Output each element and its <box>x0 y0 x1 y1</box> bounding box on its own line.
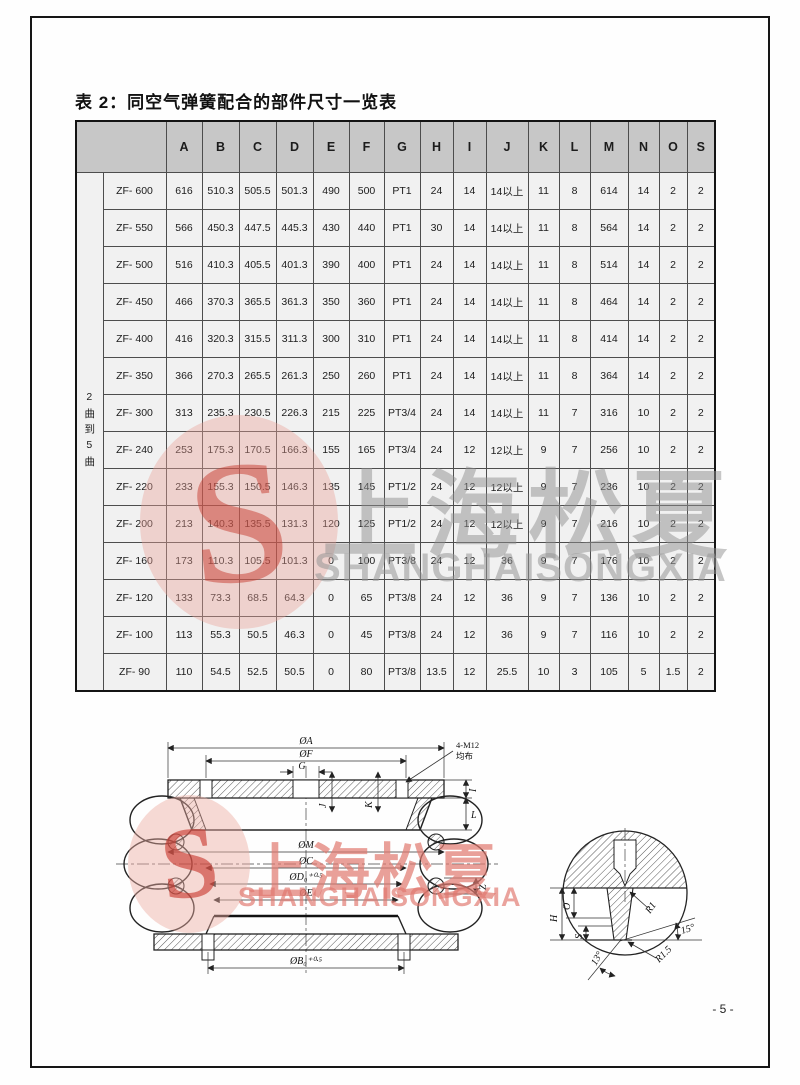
dimension-table-wrap: ABCDEFGHIJKLMNOS 2曲到5曲ZF- 600616510.3505… <box>75 120 716 692</box>
table-cell: 11 <box>528 321 559 358</box>
table-cell: 14以上 <box>486 321 528 358</box>
table-cell: 8 <box>559 210 590 247</box>
dim-label-of: ØF <box>298 749 313 760</box>
table-cell: 36 <box>486 543 528 580</box>
table-cell: 215 <box>313 395 349 432</box>
table-cell: 155.3 <box>202 469 239 506</box>
model-name-cell: ZF- 200 <box>103 506 166 543</box>
table-cell: 113 <box>166 617 202 654</box>
table-row: ZF- 10011355.350.546.3045PT3/82412369711… <box>76 617 715 654</box>
table-cell: 11 <box>528 210 559 247</box>
table-cell: 2 <box>659 580 687 617</box>
table-cell: 10 <box>628 543 659 580</box>
table-cell: 9 <box>528 617 559 654</box>
table-cell: 12 <box>453 580 486 617</box>
table-cell: 410.3 <box>202 247 239 284</box>
table-cell: 445.3 <box>276 210 313 247</box>
table-cell: PT3/8 <box>384 580 420 617</box>
table-cell: 14 <box>453 358 486 395</box>
table-cell: 2 <box>687 358 715 395</box>
row-group-label: 2曲到5曲 <box>76 173 103 692</box>
model-name-cell: ZF- 500 <box>103 247 166 284</box>
dim-label-oc: ØC <box>298 856 313 867</box>
model-name-cell: ZF- 550 <box>103 210 166 247</box>
table-cell: 11 <box>528 284 559 321</box>
table-cell: 514 <box>590 247 628 284</box>
table-cell: 2 <box>687 580 715 617</box>
table-cell: 14以上 <box>486 173 528 210</box>
table-cell: 131.3 <box>276 506 313 543</box>
table-cell: 260 <box>349 358 384 395</box>
table-row: ZF- 160173110.3105.5101.30100PT3/8241236… <box>76 543 715 580</box>
table-cell: 170.5 <box>239 432 276 469</box>
table-cell: 311.3 <box>276 321 313 358</box>
table-cell: 14 <box>453 395 486 432</box>
page-number: - 5 - <box>688 1002 758 1016</box>
table-cell: 450.3 <box>202 210 239 247</box>
table-cell: 261.3 <box>276 358 313 395</box>
table-cell: 10 <box>628 395 659 432</box>
technical-drawing: ØA ØF G 4-M12 均布 J K I L <box>110 728 710 984</box>
column-header: G <box>384 121 420 173</box>
column-header: J <box>486 121 528 173</box>
table-cell: 313 <box>166 395 202 432</box>
table-cell: 24 <box>420 284 453 321</box>
table-cell: 2 <box>687 506 715 543</box>
table-cell: 65 <box>349 580 384 617</box>
table-cell: 12 <box>453 469 486 506</box>
detail-view: H O S R1 R1.5 15° 13° <box>549 828 702 980</box>
table-cell: 36 <box>486 617 528 654</box>
table-row: ZF- 12013373.368.564.3065PT3/82412369713… <box>76 580 715 617</box>
table-cell: 12以上 <box>486 432 528 469</box>
dim-label-z: Z <box>478 884 489 890</box>
table-cell: 2 <box>687 321 715 358</box>
column-header: B <box>202 121 239 173</box>
table-corner-cell <box>76 121 166 173</box>
table-cell: 13.5 <box>420 654 453 692</box>
table-cell: 146.3 <box>276 469 313 506</box>
table-cell: 24 <box>420 432 453 469</box>
table-cell: 236 <box>590 469 628 506</box>
table-cell: 14 <box>628 321 659 358</box>
table-cell: 233 <box>166 469 202 506</box>
table-cell: 253 <box>166 432 202 469</box>
table-cell: 320.3 <box>202 321 239 358</box>
table-cell: PT1 <box>384 247 420 284</box>
table-cell: 2 <box>687 469 715 506</box>
table-cell: 24 <box>420 580 453 617</box>
table-cell: 2 <box>659 321 687 358</box>
table-cell: 10 <box>628 506 659 543</box>
table-cell: 416 <box>166 321 202 358</box>
table-cell: 11 <box>528 358 559 395</box>
table-cell: 7 <box>559 580 590 617</box>
dim-label-om: ØM <box>297 840 314 851</box>
table-cell: 366 <box>166 358 202 395</box>
table-cell: 564 <box>590 210 628 247</box>
table-cell: 24 <box>420 358 453 395</box>
column-header: S <box>687 121 715 173</box>
table-cell: 24 <box>420 247 453 284</box>
table-cell: 2 <box>687 395 715 432</box>
table-cell: PT3/4 <box>384 432 420 469</box>
table-cell: 2 <box>659 617 687 654</box>
dim-label-g: G <box>298 761 305 772</box>
table-cell: PT1 <box>384 210 420 247</box>
model-name-cell: ZF- 120 <box>103 580 166 617</box>
model-name-cell: ZF- 240 <box>103 432 166 469</box>
column-header: H <box>420 121 453 173</box>
dim-label-oa: ØA <box>298 736 313 747</box>
table-cell: 12 <box>453 617 486 654</box>
table-cell: 505.5 <box>239 173 276 210</box>
table-cell: 68.5 <box>239 580 276 617</box>
table-cell: 310 <box>349 321 384 358</box>
table-cell: 14 <box>628 247 659 284</box>
table-cell: 80 <box>349 654 384 692</box>
table-cell: 8 <box>559 358 590 395</box>
dim-label-o: O <box>562 903 573 910</box>
table-cell: 8 <box>559 321 590 358</box>
table-cell: 101.3 <box>276 543 313 580</box>
table-cell: 10 <box>628 580 659 617</box>
table-cell: 216 <box>590 506 628 543</box>
table-cell: 256 <box>590 432 628 469</box>
table-cell: 2 <box>659 358 687 395</box>
model-name-cell: ZF- 220 <box>103 469 166 506</box>
table-cell: 12 <box>453 543 486 580</box>
table-cell: 9 <box>528 506 559 543</box>
table-cell: 7 <box>559 506 590 543</box>
table-cell: 14 <box>453 173 486 210</box>
bolt-spec-label: 4-M12 <box>456 740 479 750</box>
table-cell: 120 <box>313 506 349 543</box>
table-cell: 370.3 <box>202 284 239 321</box>
table-cell: 2 <box>659 432 687 469</box>
table-cell: PT1/2 <box>384 506 420 543</box>
table-cell: 7 <box>559 395 590 432</box>
table-cell: 24 <box>420 173 453 210</box>
table-cell: 45 <box>349 617 384 654</box>
table-cell: 401.3 <box>276 247 313 284</box>
table-cell: 110.3 <box>202 543 239 580</box>
table-cell: 2 <box>659 210 687 247</box>
table-cell: 24 <box>420 617 453 654</box>
table-row: ZF- 200213140.3135.5131.3120125PT1/22412… <box>76 506 715 543</box>
table-row: ZF- 9011054.552.550.5080PT3/813.51225.51… <box>76 654 715 692</box>
table-cell: 50.5 <box>239 617 276 654</box>
model-name-cell: ZF- 400 <box>103 321 166 358</box>
model-name-cell: ZF- 350 <box>103 358 166 395</box>
table-cell: 14 <box>453 321 486 358</box>
table-cell: 9 <box>528 469 559 506</box>
table-cell: 510.3 <box>202 173 239 210</box>
table-cell: 9 <box>528 432 559 469</box>
table-cell: 2 <box>659 173 687 210</box>
table-cell: 64.3 <box>276 580 313 617</box>
table-cell: 30 <box>420 210 453 247</box>
table-cell: 0 <box>313 543 349 580</box>
table-cell: 14 <box>453 247 486 284</box>
table-cell: 10 <box>628 469 659 506</box>
table-cell: 50.5 <box>276 654 313 692</box>
column-header: F <box>349 121 384 173</box>
model-name-cell: ZF- 100 <box>103 617 166 654</box>
model-name-cell: ZF- 300 <box>103 395 166 432</box>
table-cell: 100 <box>349 543 384 580</box>
table-cell: PT1/2 <box>384 469 420 506</box>
table-cell: 0 <box>313 617 349 654</box>
table-cell: 501.3 <box>276 173 313 210</box>
column-header: A <box>166 121 202 173</box>
table-cell: 316 <box>590 395 628 432</box>
table-cell: 2 <box>687 432 715 469</box>
table-cell: 11 <box>528 247 559 284</box>
dimension-table: ABCDEFGHIJKLMNOS 2曲到5曲ZF- 600616510.3505… <box>75 120 716 692</box>
table-cell: 25.5 <box>486 654 528 692</box>
table-row: ZF- 450466370.3365.5361.3350360PT1241414… <box>76 284 715 321</box>
dim-label-i: I <box>468 788 479 793</box>
model-name-cell: ZF- 160 <box>103 543 166 580</box>
table-cell: 14以上 <box>486 358 528 395</box>
table-cell: 265.5 <box>239 358 276 395</box>
table-cell: 166.3 <box>276 432 313 469</box>
table-cell: 140.3 <box>202 506 239 543</box>
table-cell: 2 <box>659 395 687 432</box>
dim-label-oe: ØE <box>298 888 312 899</box>
page-title: 表 2：同空气弹簧配合的部件尺寸一览表 <box>75 88 397 113</box>
table-cell: 2 <box>687 284 715 321</box>
table-cell: 614 <box>590 173 628 210</box>
table-cell: 14 <box>453 284 486 321</box>
dim-label-angle-a: 13° <box>589 950 606 968</box>
table-row: ZF- 500516410.3405.5401.3390400PT1241414… <box>76 247 715 284</box>
table-cell: 133 <box>166 580 202 617</box>
table-cell: 105.5 <box>239 543 276 580</box>
table-cell: 176 <box>590 543 628 580</box>
table-row: ZF- 220233155.3150.5146.3135145PT1/22412… <box>76 469 715 506</box>
table-cell: 516 <box>166 247 202 284</box>
table-cell: 440 <box>349 210 384 247</box>
table-row: ZF- 300313235.3230.5226.3215225PT3/42414… <box>76 395 715 432</box>
table-cell: 447.5 <box>239 210 276 247</box>
table-cell: 9 <box>528 543 559 580</box>
table-cell: 14以上 <box>486 210 528 247</box>
table-cell: 105 <box>590 654 628 692</box>
table-cell: 400 <box>349 247 384 284</box>
column-header: N <box>628 121 659 173</box>
table-cell: 116 <box>590 617 628 654</box>
table-cell: 12以上 <box>486 469 528 506</box>
table-cell: 135.5 <box>239 506 276 543</box>
crimp-ring <box>428 834 444 850</box>
table-cell: 2 <box>687 654 715 692</box>
column-header: O <box>659 121 687 173</box>
table-cell: 135 <box>313 469 349 506</box>
column-header: E <box>313 121 349 173</box>
table-cell: PT3/8 <box>384 654 420 692</box>
table-cell: 315.5 <box>239 321 276 358</box>
column-header: C <box>239 121 276 173</box>
table-cell: 36 <box>486 580 528 617</box>
table-cell: 14以上 <box>486 284 528 321</box>
table-cell: 270.3 <box>202 358 239 395</box>
table-cell: 0 <box>313 580 349 617</box>
column-header: I <box>453 121 486 173</box>
table-cell: 8 <box>559 284 590 321</box>
table-cell: 9 <box>528 580 559 617</box>
table-cell: 125 <box>349 506 384 543</box>
column-header: K <box>528 121 559 173</box>
table-cell: 226.3 <box>276 395 313 432</box>
table-cell: 24 <box>420 543 453 580</box>
table-cell: 500 <box>349 173 384 210</box>
table-cell: PT1 <box>384 173 420 210</box>
table-cell: 8 <box>559 173 590 210</box>
table-cell: 464 <box>590 284 628 321</box>
table-cell: 24 <box>420 506 453 543</box>
table-cell: 7 <box>559 617 590 654</box>
table-cell: 14以上 <box>486 395 528 432</box>
model-name-cell: ZF- 600 <box>103 173 166 210</box>
table-cell: 350 <box>313 284 349 321</box>
table-cell: 12 <box>453 654 486 692</box>
table-cell: 145 <box>349 469 384 506</box>
table-cell: 24 <box>420 321 453 358</box>
table-cell: 616 <box>166 173 202 210</box>
dim-label-k: K <box>364 800 375 809</box>
dim-label-s: S <box>574 934 585 939</box>
table-cell: 14 <box>628 284 659 321</box>
table-cell: 55.3 <box>202 617 239 654</box>
table-cell: 2 <box>659 543 687 580</box>
table-cell: 2 <box>659 469 687 506</box>
crimp-ring <box>168 834 184 850</box>
crimp-ring <box>428 878 444 894</box>
table-cell: 12以上 <box>486 506 528 543</box>
dim-label-ob: ØB₀⁺⁰·⁵ <box>289 956 323 967</box>
table-cell: 8 <box>559 247 590 284</box>
table-cell: 566 <box>166 210 202 247</box>
dim-label-h: H <box>549 914 560 923</box>
table-cell: 0 <box>313 654 349 692</box>
table-cell: 136 <box>590 580 628 617</box>
table-cell: 250 <box>313 358 349 395</box>
table-row: 2曲到5曲ZF- 600616510.3505.5501.3490500PT12… <box>76 173 715 210</box>
table-cell: 12 <box>453 506 486 543</box>
table-cell: PT1 <box>384 284 420 321</box>
table-row: ZF- 240253175.3170.5166.3155165PT3/42412… <box>76 432 715 469</box>
table-cell: 225 <box>349 395 384 432</box>
dim-label-j: J <box>318 803 329 808</box>
column-header: L <box>559 121 590 173</box>
table-cell: 14以上 <box>486 247 528 284</box>
table-body: ABCDEFGHIJKLMNOS 2曲到5曲ZF- 600616510.3505… <box>76 121 715 691</box>
table-cell: 1.5 <box>659 654 687 692</box>
table-cell: 10 <box>628 432 659 469</box>
table-cell: 5 <box>628 654 659 692</box>
table-cell: 2 <box>687 543 715 580</box>
table-cell: 3 <box>559 654 590 692</box>
catalog-page: 表 2：同空气弹簧配合的部件尺寸一览表 ABCDEFGHIJKLMNOS 2曲到… <box>0 0 800 1085</box>
table-cell: 2 <box>659 506 687 543</box>
table-cell: 361.3 <box>276 284 313 321</box>
dim-label-angle-b: 15° <box>680 922 697 937</box>
table-cell: 7 <box>559 543 590 580</box>
table-cell: 2 <box>687 247 715 284</box>
dim-label-l: L <box>470 810 477 821</box>
table-cell: 2 <box>687 173 715 210</box>
table-cell: 490 <box>313 173 349 210</box>
table-cell: 52.5 <box>239 654 276 692</box>
column-header: D <box>276 121 313 173</box>
table-cell: 230.5 <box>239 395 276 432</box>
table-cell: 365.5 <box>239 284 276 321</box>
crimp-ring <box>168 878 184 894</box>
table-cell: 73.3 <box>202 580 239 617</box>
table-cell: 14 <box>628 210 659 247</box>
model-name-cell: ZF- 90 <box>103 654 166 692</box>
table-cell: 213 <box>166 506 202 543</box>
table-cell: 7 <box>559 469 590 506</box>
table-cell: 14 <box>628 173 659 210</box>
table-cell: 24 <box>420 469 453 506</box>
table-cell: 11 <box>528 395 559 432</box>
table-cell: 10 <box>628 617 659 654</box>
table-cell: 300 <box>313 321 349 358</box>
table-row: ZF- 350366270.3265.5261.3250260PT1241414… <box>76 358 715 395</box>
table-cell: 390 <box>313 247 349 284</box>
table-cell: 235.3 <box>202 395 239 432</box>
table-cell: 10 <box>528 654 559 692</box>
table-cell: 175.3 <box>202 432 239 469</box>
model-name-cell: ZF- 450 <box>103 284 166 321</box>
table-cell: 2 <box>659 284 687 321</box>
table-cell: 46.3 <box>276 617 313 654</box>
dimension-lines-top: ØA ØF G 4-M12 均布 J K I L <box>168 736 489 894</box>
table-cell: 414 <box>590 321 628 358</box>
table-cell: PT3/8 <box>384 543 420 580</box>
table-cell: 11 <box>528 173 559 210</box>
table-cell: 165 <box>349 432 384 469</box>
table-cell: 14 <box>453 210 486 247</box>
table-cell: 12 <box>453 432 486 469</box>
table-cell: 405.5 <box>239 247 276 284</box>
table-cell: 2 <box>687 617 715 654</box>
table-cell: PT1 <box>384 321 420 358</box>
table-cell: PT3/4 <box>384 395 420 432</box>
table-cell: 173 <box>166 543 202 580</box>
table-cell: 360 <box>349 284 384 321</box>
table-cell: 466 <box>166 284 202 321</box>
table-cell: 14 <box>628 358 659 395</box>
table-cell: 110 <box>166 654 202 692</box>
table-cell: 155 <box>313 432 349 469</box>
column-header: M <box>590 121 628 173</box>
table-cell: PT1 <box>384 358 420 395</box>
table-header-row: ABCDEFGHIJKLMNOS <box>76 121 715 173</box>
table-row: ZF- 400416320.3315.5311.3300310PT1241414… <box>76 321 715 358</box>
dim-label-od: ØD₀⁺⁰·⁵ <box>288 872 323 883</box>
table-cell: 7 <box>559 432 590 469</box>
table-cell: 430 <box>313 210 349 247</box>
table-cell: 2 <box>687 210 715 247</box>
table-cell: 24 <box>420 395 453 432</box>
bolt-spec-note: 均布 <box>456 751 473 761</box>
table-cell: 2 <box>659 247 687 284</box>
table-cell: 364 <box>590 358 628 395</box>
